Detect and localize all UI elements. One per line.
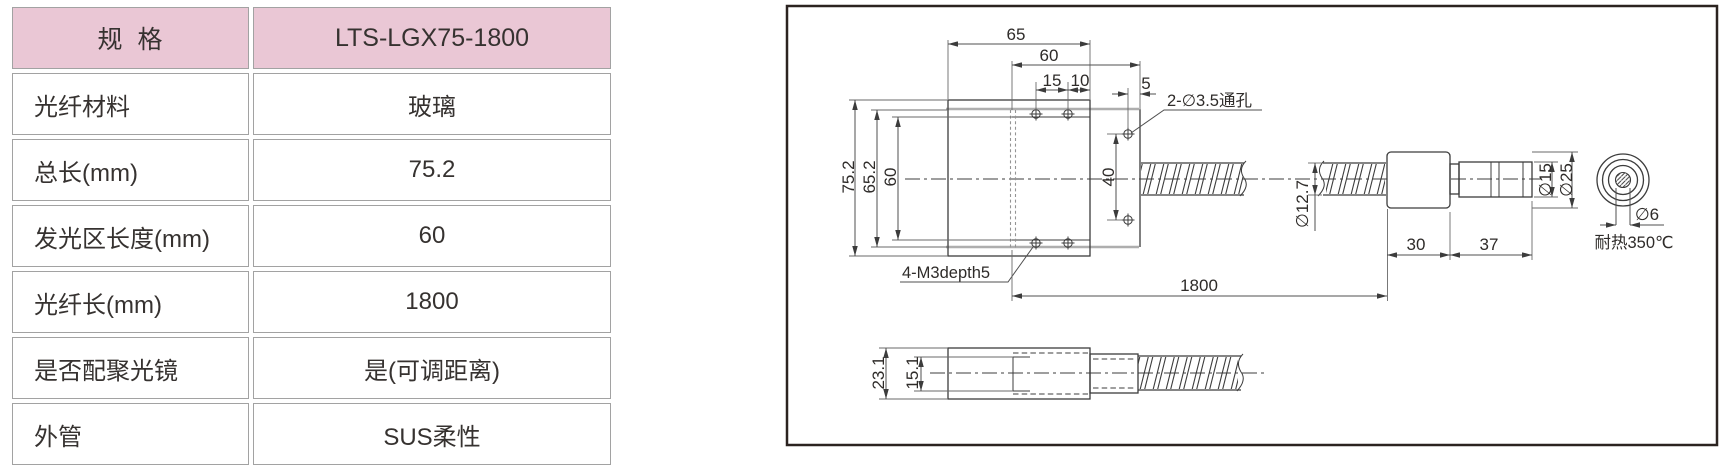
dim-hole-pitch-label: 15 (1043, 71, 1062, 90)
dim-flange-hole-offset-label: 5 (1141, 74, 1150, 93)
dim-emit-width-label: 60 (1040, 46, 1059, 65)
dim-tip-len-label: 37 (1480, 235, 1499, 254)
tap-holes-label: 4-M3depth5 (902, 264, 990, 282)
flexible-conduit (1138, 354, 1243, 391)
datasheet-page: { "table": { "header_bg": "#eac7d5", "he… (0, 0, 1724, 453)
side-dim-inner-height-label: 15.1 (903, 356, 922, 389)
flexible-conduit (1318, 161, 1386, 196)
drawing-panel-border (787, 6, 1717, 445)
flexible-conduit (1141, 161, 1246, 196)
through-holes-label: 2-∅3.5通孔 (1167, 91, 1252, 110)
dim-inner-height-label: 65.2 (860, 160, 879, 193)
housing-body (948, 100, 1090, 256)
dim-conduit-dia-label: ∅12.7 (1293, 180, 1312, 228)
dim-total-height-label: 75.2 (839, 160, 858, 193)
technical-drawing: 65 60 15 10 5 2-∅3.5通孔 75.2 65.2 60 (0, 0, 1724, 453)
dim-emit-height-label: 60 (881, 168, 900, 187)
dim-tip-dia-label: ∅15 (1536, 163, 1555, 197)
fiber-core (1616, 173, 1631, 188)
dim-hole-offset-label: 10 (1071, 71, 1090, 90)
dim-connector-dia-label: ∅25 (1557, 163, 1576, 197)
side-dim-height-label: 23.1 (869, 356, 888, 389)
dim-flange-hole-pitch-label: 40 (1099, 168, 1118, 187)
dim-core-dia-label: ∅6 (1635, 205, 1659, 224)
heat-resist-label: 耐热350℃ (1594, 233, 1673, 252)
dim-fiber-length-label: 1800 (1180, 276, 1218, 295)
connector-block (1387, 152, 1450, 208)
dim-connector-len-label: 30 (1407, 235, 1426, 254)
dim-top-width-label: 65 (1007, 25, 1026, 44)
